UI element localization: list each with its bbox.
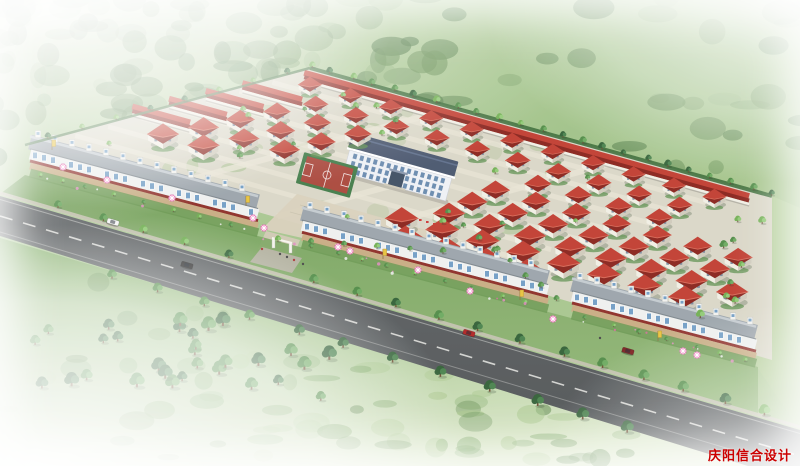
residential-development-aerial-view	[0, 0, 800, 466]
aerial-rendering-page: 庆阳信合设计	[0, 0, 800, 466]
designer-watermark: 庆阳信合设计	[708, 445, 792, 464]
